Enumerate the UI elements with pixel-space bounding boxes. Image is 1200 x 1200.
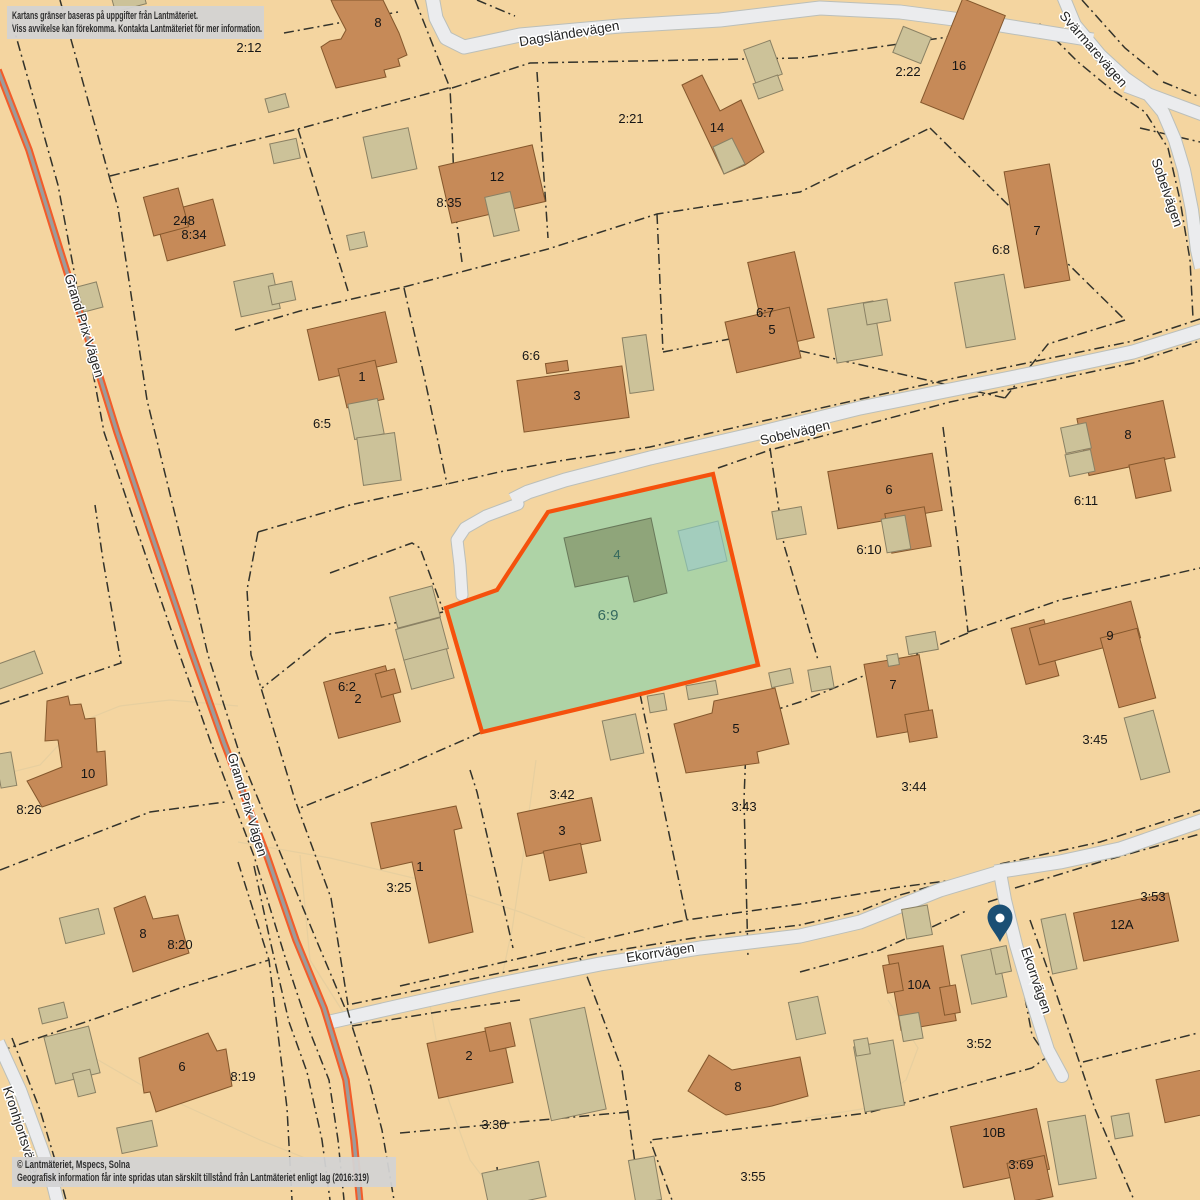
svg-text:8: 8 [374, 15, 381, 30]
svg-text:10: 10 [81, 766, 95, 781]
svg-text:6:7: 6:7 [756, 305, 774, 320]
svg-text:4: 4 [613, 547, 620, 562]
svg-text:3:30: 3:30 [481, 1117, 506, 1132]
svg-text:10A: 10A [907, 977, 930, 992]
svg-text:5: 5 [768, 322, 775, 337]
svg-text:7: 7 [889, 677, 896, 692]
svg-text:6:10: 6:10 [856, 542, 881, 557]
svg-text:6:6: 6:6 [522, 348, 540, 363]
svg-text:6:8: 6:8 [992, 242, 1010, 257]
svg-text:6:2: 6:2 [338, 679, 356, 694]
svg-text:3:44: 3:44 [901, 779, 926, 794]
svg-text:3:25: 3:25 [386, 880, 411, 895]
svg-text:248: 248 [173, 213, 195, 228]
svg-text:12: 12 [490, 169, 504, 184]
svg-text:2: 2 [354, 691, 361, 706]
svg-text:3:69: 3:69 [1008, 1157, 1033, 1172]
svg-text:6: 6 [178, 1059, 185, 1074]
svg-text:5: 5 [732, 721, 739, 736]
svg-text:6:9: 6:9 [598, 607, 619, 624]
svg-text:Geografisk information får int: Geografisk information får inte spridas … [17, 1172, 369, 1184]
svg-text:3:43: 3:43 [731, 799, 756, 814]
svg-text:8: 8 [139, 926, 146, 941]
svg-text:8:26: 8:26 [16, 802, 41, 817]
svg-text:2:22: 2:22 [895, 64, 920, 79]
svg-text:16: 16 [952, 58, 966, 73]
svg-text:3:52: 3:52 [966, 1036, 991, 1051]
svg-text:6:11: 6:11 [1074, 493, 1098, 508]
svg-text:3: 3 [558, 823, 565, 838]
svg-text:3:42: 3:42 [549, 787, 574, 802]
svg-text:12A: 12A [1110, 917, 1133, 932]
svg-text:3: 3 [573, 388, 580, 403]
svg-text:2: 2 [465, 1048, 472, 1063]
svg-text:© Lantmäteriet, Mspecs, Solna: © Lantmäteriet, Mspecs, Solna [17, 1159, 131, 1171]
svg-text:1: 1 [358, 369, 365, 384]
svg-text:Kartans gränser baseras på upp: Kartans gränser baseras på uppgifter frå… [12, 10, 198, 22]
svg-text:2:21: 2:21 [618, 111, 643, 126]
svg-text:Viss avvikelse kan förekomma.: Viss avvikelse kan förekomma. Kontakta L… [12, 23, 262, 35]
svg-text:8:35: 8:35 [436, 195, 461, 210]
svg-text:14: 14 [710, 120, 724, 135]
svg-text:8: 8 [1124, 427, 1131, 442]
svg-text:7: 7 [1033, 223, 1040, 238]
svg-text:6:5: 6:5 [313, 416, 331, 431]
svg-text:6: 6 [885, 482, 892, 497]
svg-text:8:19: 8:19 [230, 1069, 255, 1084]
svg-text:1: 1 [416, 859, 423, 874]
svg-text:2:12: 2:12 [236, 40, 261, 55]
svg-text:9: 9 [1106, 628, 1113, 643]
svg-text:8: 8 [734, 1079, 741, 1094]
svg-text:3:53: 3:53 [1140, 889, 1165, 904]
svg-text:10B: 10B [982, 1125, 1005, 1140]
svg-text:3:55: 3:55 [740, 1169, 765, 1184]
svg-text:3:45: 3:45 [1082, 732, 1107, 747]
svg-text:8:34: 8:34 [181, 227, 206, 242]
svg-text:8:20: 8:20 [167, 937, 192, 952]
